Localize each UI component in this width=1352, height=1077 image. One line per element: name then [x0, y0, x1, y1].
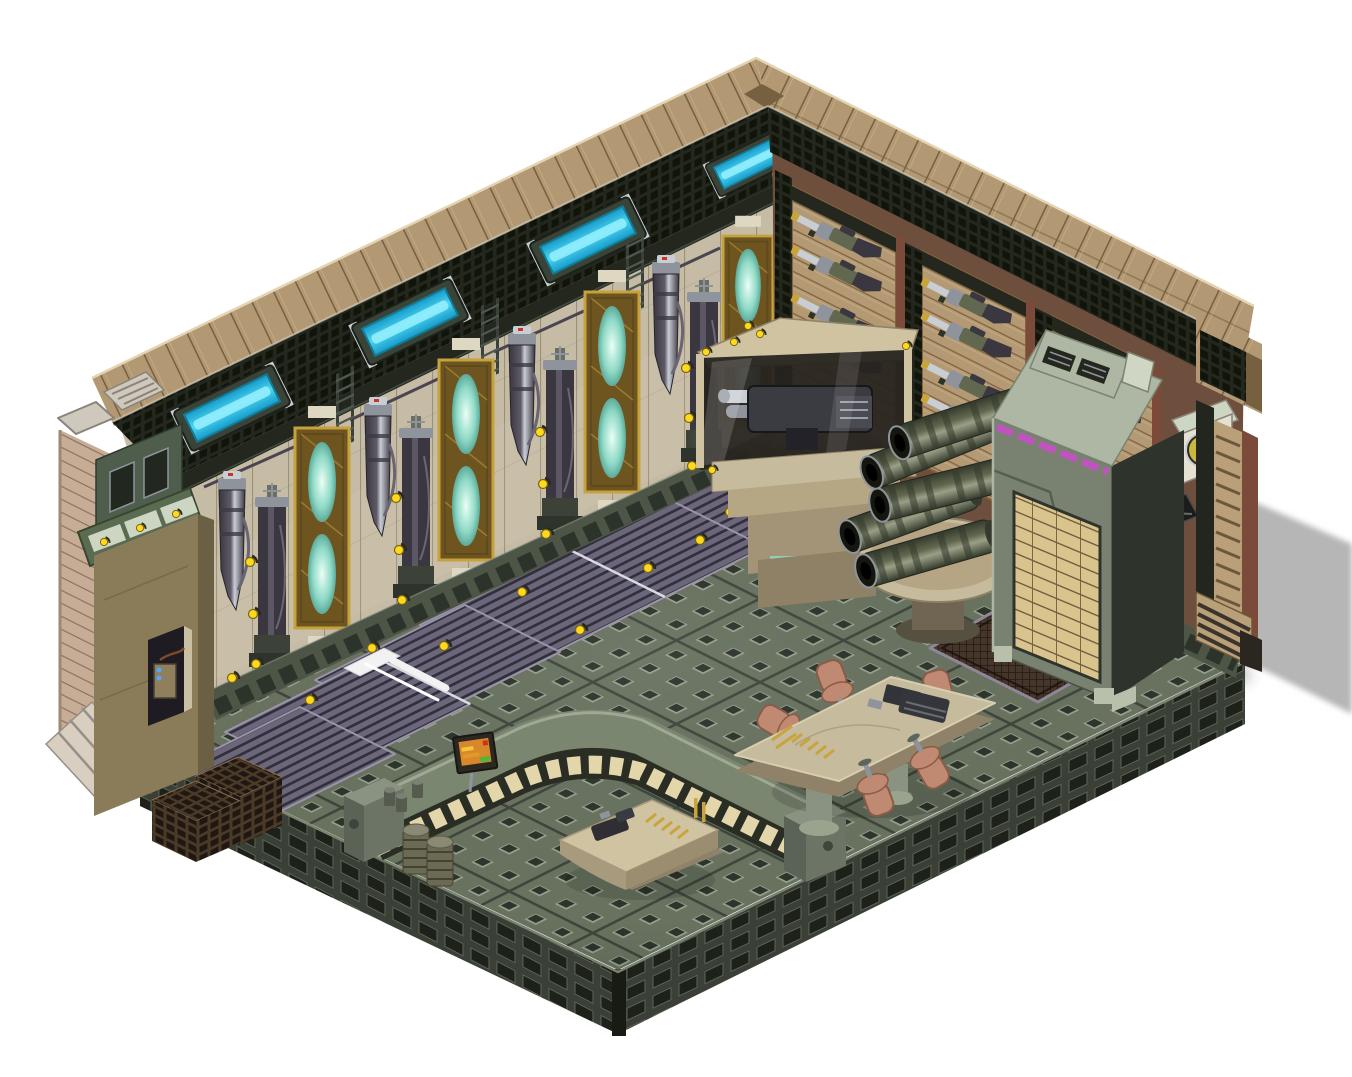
right-exterior: [1196, 312, 1262, 672]
storage-barrel[interactable]: [427, 836, 453, 886]
glow-tube-panel: [585, 270, 639, 512]
isometric-room-render: [0, 0, 1352, 1077]
armory-scene: [0, 0, 1352, 1077]
glow-tube-panel: [295, 406, 349, 648]
ammo-cabinet[interactable]: [993, 330, 1184, 712]
service-window: [148, 626, 192, 726]
glow-tube-panel: [439, 338, 493, 580]
storage-barrel[interactable]: [403, 824, 429, 874]
